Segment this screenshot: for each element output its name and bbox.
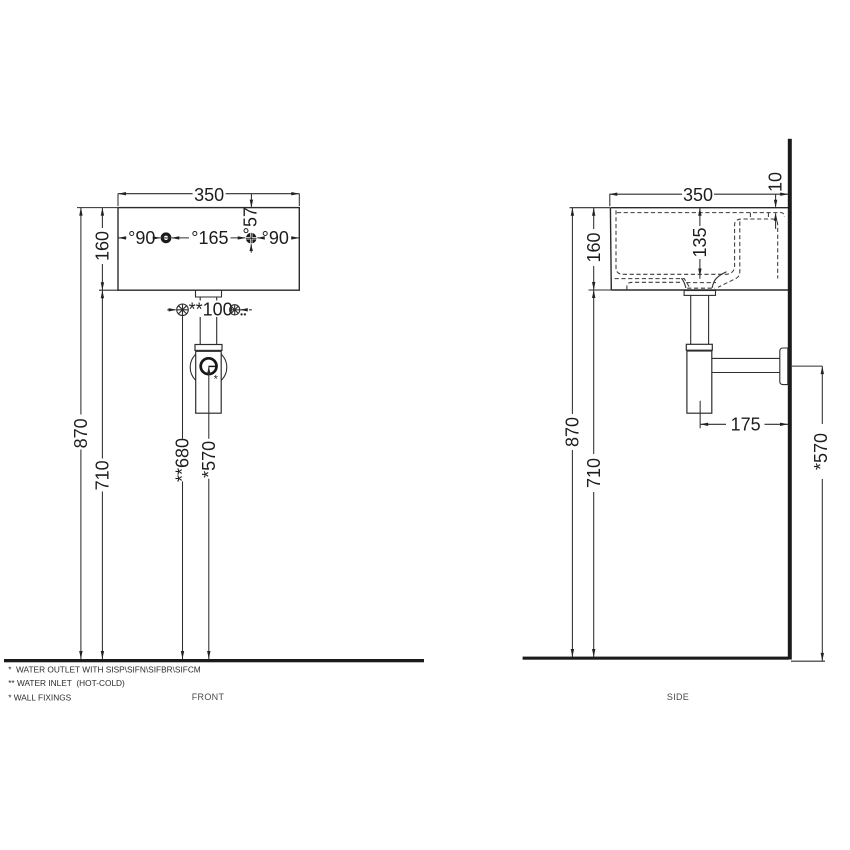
svg-text:870: 870 bbox=[562, 417, 582, 447]
svg-text:350: 350 bbox=[683, 185, 713, 205]
svg-text:160: 160 bbox=[93, 231, 113, 261]
svg-text:°90: °90 bbox=[262, 228, 289, 248]
svg-text:* WATER OUTLET WITH SISP\SIFN: * WATER OUTLET WITH SISP\SIFN\SIFBR\SIFC… bbox=[8, 665, 201, 675]
svg-text:FRONT: FRONT bbox=[192, 692, 225, 702]
svg-text:* WALL FIXINGS: * WALL FIXINGS bbox=[8, 693, 71, 703]
svg-text:*570: *570 bbox=[811, 433, 831, 470]
svg-text:710: 710 bbox=[93, 460, 113, 490]
svg-text:*570: *570 bbox=[199, 441, 219, 478]
svg-text:**680: **680 bbox=[172, 438, 192, 482]
svg-text:350: 350 bbox=[194, 185, 224, 205]
svg-text:160: 160 bbox=[584, 232, 604, 262]
svg-text:°90: °90 bbox=[128, 228, 155, 248]
svg-text:135: 135 bbox=[690, 227, 710, 257]
svg-text:870: 870 bbox=[71, 418, 91, 448]
svg-text:710: 710 bbox=[584, 458, 604, 488]
svg-text:**100: **100 bbox=[189, 300, 233, 320]
svg-text:SIDE: SIDE bbox=[667, 692, 689, 702]
svg-text:°165: °165 bbox=[191, 228, 228, 248]
svg-text:10: 10 bbox=[766, 172, 786, 192]
svg-text:°57: °57 bbox=[241, 207, 261, 234]
svg-text:** WATER INLET (HOT-COLD): ** WATER INLET (HOT-COLD) bbox=[8, 678, 125, 688]
svg-text:*: * bbox=[214, 374, 219, 386]
svg-text:175: 175 bbox=[731, 415, 761, 435]
